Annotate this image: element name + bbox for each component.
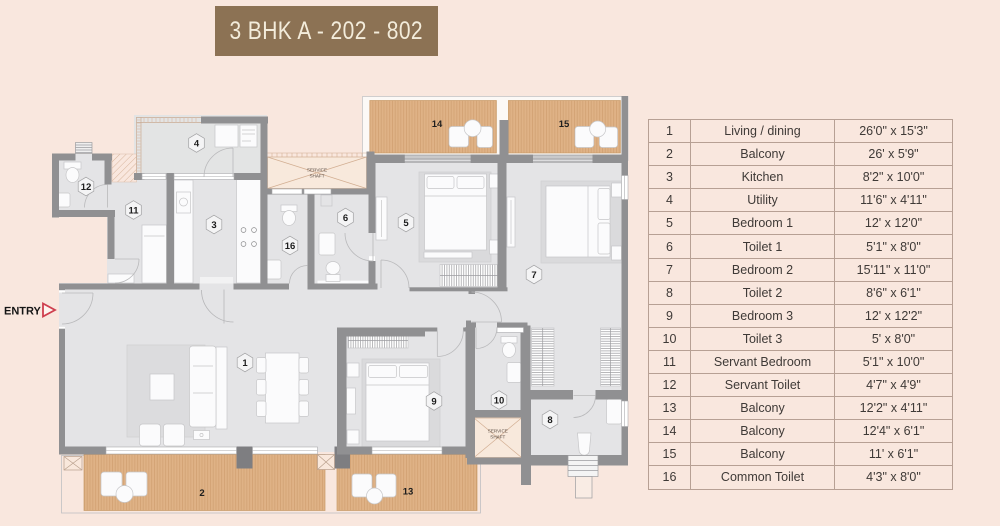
svg-text:ENTRY: ENTRY bbox=[4, 306, 42, 318]
svg-text:13: 13 bbox=[403, 487, 414, 498]
svg-text:SERVICE: SERVICE bbox=[307, 168, 327, 173]
svg-text:2: 2 bbox=[199, 488, 204, 499]
svg-text:11: 11 bbox=[128, 206, 139, 217]
svg-text:10: 10 bbox=[494, 396, 505, 407]
svg-text:9: 9 bbox=[431, 397, 436, 408]
svg-text:SERVICE: SERVICE bbox=[488, 429, 508, 434]
svg-text:5: 5 bbox=[403, 218, 409, 229]
svg-text:SHAFT: SHAFT bbox=[309, 174, 324, 179]
svg-text:SHAFT: SHAFT bbox=[490, 435, 505, 440]
svg-text:12: 12 bbox=[81, 182, 92, 193]
svg-text:14: 14 bbox=[432, 119, 443, 130]
svg-text:7: 7 bbox=[531, 270, 536, 281]
svg-text:15: 15 bbox=[559, 119, 570, 130]
svg-text:3: 3 bbox=[211, 220, 216, 231]
svg-text:6: 6 bbox=[343, 213, 348, 224]
svg-text:1: 1 bbox=[242, 358, 248, 369]
svg-text:16: 16 bbox=[285, 241, 296, 252]
svg-text:4: 4 bbox=[194, 139, 200, 150]
svg-text:8: 8 bbox=[547, 415, 552, 426]
